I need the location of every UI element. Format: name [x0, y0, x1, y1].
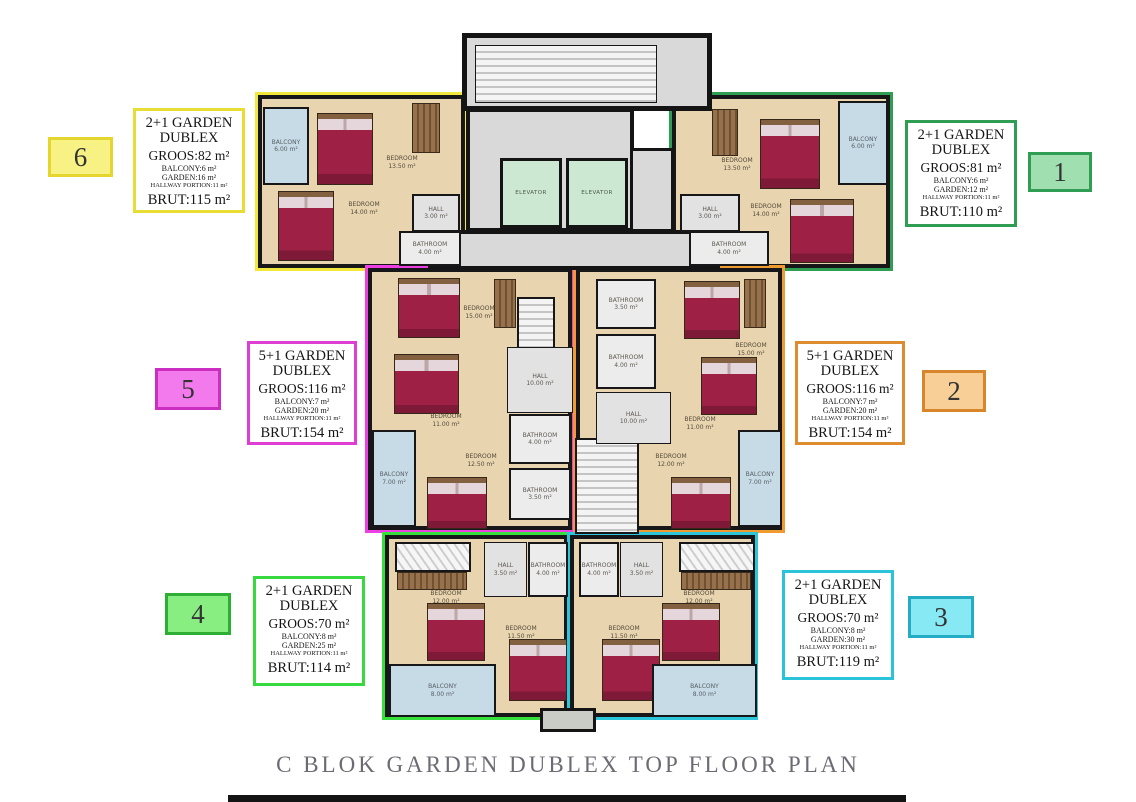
unit1-bedroom1-label: BEDROOM13.50 m² [702, 157, 772, 172]
badge-1: 1 [1028, 152, 1092, 192]
info-box-4: 2+1 GARDEN DUBLEX GROOS:70 m² BALCONY:8 … [253, 576, 365, 686]
bed [394, 354, 459, 414]
badge-2: 2 [922, 370, 986, 412]
central-staircase [575, 438, 639, 534]
staircase [679, 542, 755, 572]
unit-1: BALCONY 6.00 m² BEDROOM13.50 m² HALL3.00… [672, 95, 890, 268]
unit-5: BEDROOM15.00 m² BEDROOM11.00 m² BALCONY … [368, 268, 572, 530]
info-box-2: 5+1 GARDEN DUBLEX GROOS:116 m² BALCONY:7… [795, 341, 905, 445]
badge-3: 3 [908, 596, 974, 638]
floor-plan-canvas: ELEVATOR ELEVATOR BALCONY 6.00 m² BEDROO… [0, 0, 1136, 802]
wardrobe [397, 572, 467, 590]
unit4-balcony: BALCONY 8.00 m² [389, 664, 496, 717]
room-label: BALCONY [272, 139, 301, 147]
unit5-bedroom2-label: BEDROOM11.00 m² [411, 413, 481, 428]
unit3-bedroom1-label: BEDROOM12.00 m² [664, 590, 734, 605]
bed [427, 603, 485, 661]
unit6-balcony: BALCONY 6.00 m² [263, 107, 309, 185]
unit4-bedroom2-label: BEDROOM11.50 m² [486, 625, 556, 640]
bed [278, 191, 334, 261]
unit6-bathroom: BATHROOM4.00 m² [399, 231, 461, 266]
unit6-bedroom1-label: BEDROOM13.50 m² [367, 155, 437, 170]
unit4-bedroom1-label: BEDROOM12.00 m² [411, 590, 481, 605]
bed [701, 357, 757, 415]
unit6-hall: HALL3.00 m² [412, 194, 460, 232]
elevator-2: ELEVATOR [566, 158, 628, 228]
unit5-bathroom2: BATHROOM3.50 m² [509, 468, 571, 520]
info-box-6: 2+1 GARDEN DUBLEX GROOS:82 m² BALCONY:6 … [133, 108, 245, 213]
unit2-bathroom1: BATHROOM3.50 m² [596, 279, 656, 329]
unit2-bedroom1-label: BEDROOM15.00 m² [716, 342, 786, 357]
unit-6: BALCONY 6.00 m² BEDROOM13.50 m² BEDROOM1… [258, 95, 465, 268]
bed [509, 639, 567, 701]
unit2-bathroom2: BATHROOM4.00 m² [596, 334, 656, 389]
staircase [475, 45, 657, 103]
unit1-balcony: BALCONY 6.00 m² [838, 101, 888, 185]
unit5-bedroom3-label: BEDROOM12.50 m² [446, 453, 516, 468]
unit3-balcony: BALCONY 8.00 m² [652, 664, 757, 717]
unit1-bedroom2-label: BEDROOM14.00 m² [731, 203, 801, 218]
info-box-3: 2+1 GARDEN DUBLEX GROOS:70 m² BALCONY:8 … [782, 570, 894, 680]
wardrobe [744, 279, 766, 328]
badge-5: 5 [155, 368, 221, 410]
stairwell-block [462, 33, 712, 111]
unit2-hall: HALL10.00 m² [596, 392, 671, 444]
entry-stub [540, 708, 596, 732]
unit5-hall: HALL10.00 m² [507, 347, 573, 413]
corridor-mid [428, 230, 720, 270]
unit3-bedroom2-label: BEDROOM11.50 m² [589, 625, 659, 640]
elevator-1: ELEVATOR [500, 158, 562, 228]
unit5-bedroom1-label: BEDROOM15.00 m² [444, 305, 514, 320]
bed [317, 113, 373, 185]
unit2-bedroom3-label: BEDROOM12.00 m² [636, 453, 706, 468]
unit2-bedroom2-label: BEDROOM11.00 m² [665, 416, 735, 431]
elevator-label: ELEVATOR [581, 190, 612, 196]
unit-3: BATHROOM4.00 m² HALL3.50 m² BEDROOM12.00… [570, 535, 755, 717]
bed [671, 477, 731, 529]
elevator-label: ELEVATOR [515, 190, 546, 196]
bed [760, 119, 820, 189]
bottom-bar [228, 795, 906, 802]
unit3-hall: HALL3.50 m² [620, 542, 663, 597]
unit5-bathroom1: BATHROOM4.00 m² [509, 414, 571, 464]
unit3-bathroom: BATHROOM4.00 m² [579, 542, 619, 597]
bed [662, 603, 720, 661]
unit4-bathroom: BATHROOM4.00 m² [528, 542, 568, 597]
unit6-bedroom2-label: BEDROOM14.00 m² [329, 201, 399, 216]
wardrobe [412, 103, 440, 153]
wardrobe [681, 572, 751, 590]
staircase [395, 542, 471, 572]
unit4-hall: HALL3.50 m² [484, 542, 527, 597]
badge-6: 6 [48, 137, 113, 177]
wardrobe [712, 109, 738, 156]
bed [427, 477, 487, 529]
info-box-5: 5+1 GARDEN DUBLEX GROOS:116 m² BALCONY:7… [247, 341, 357, 445]
bed [684, 281, 740, 339]
badge-4: 4 [165, 593, 231, 635]
wardrobe [494, 279, 516, 328]
plan-title: C BLOK GARDEN DUBLEX TOP FLOOR PLAN [0, 752, 1136, 778]
unit5-balcony: BALCONY 7.00 m² [372, 430, 416, 527]
unit1-bathroom: BATHROOM4.00 m² [689, 231, 769, 266]
unit2-balcony: BALCONY 7.00 m² [738, 430, 782, 527]
corridor-segment [630, 148, 674, 232]
room-area: 6.00 m² [274, 146, 298, 154]
info-box-1: 2+1 GARDEN DUBLEX GROOS:81 m² BALCONY:6 … [905, 120, 1017, 227]
unit-4: BEDROOM12.00 m² HALL3.50 m² BATHROOM4.00… [385, 535, 568, 717]
